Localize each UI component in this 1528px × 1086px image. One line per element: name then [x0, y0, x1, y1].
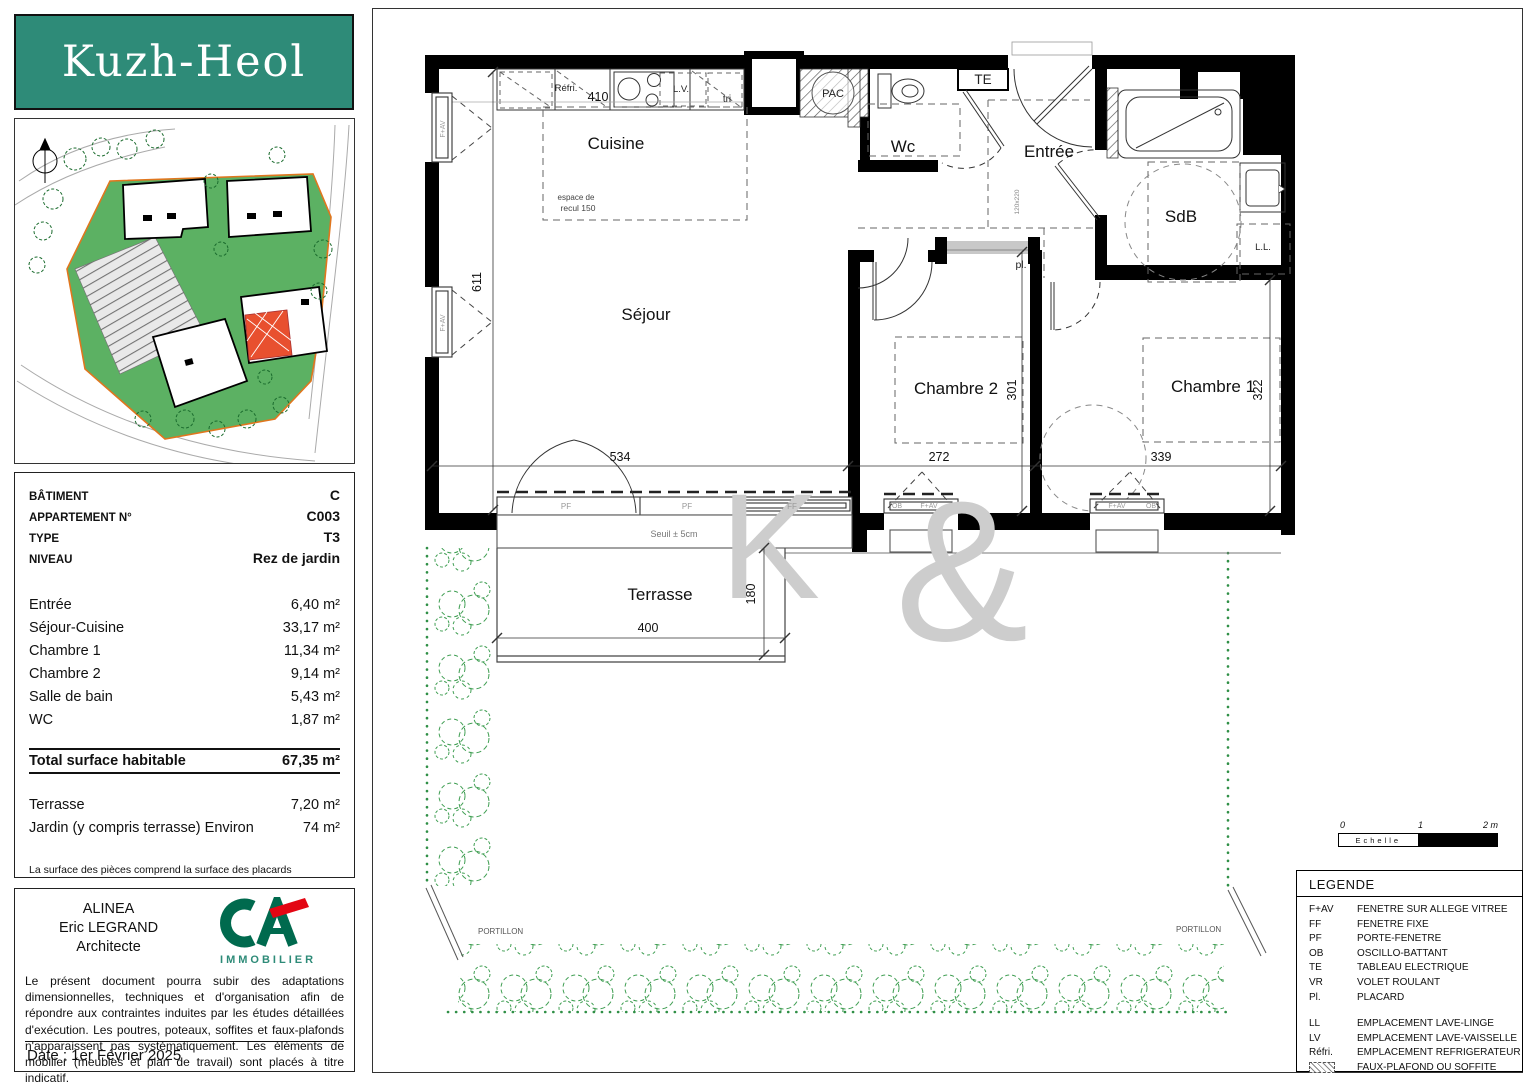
site-plan-drawing [15, 119, 354, 463]
scale-bar: 0 1 2 m Echelle [1338, 820, 1498, 854]
toilet [878, 74, 924, 108]
legend-row: LVEMPLACEMENT LAVE-VAISSELLE [1309, 1032, 1522, 1047]
room-sejour: Séjour [621, 305, 670, 324]
highlighted-unit [245, 310, 292, 360]
room-chambre2: Chambre 2 [914, 379, 998, 398]
area-row: Chambre 111,34 m² [29, 640, 340, 663]
svg-text:534: 534 [610, 450, 631, 464]
legend-row: PFPORTE-FENETRE [1309, 932, 1522, 947]
svg-text:120x220: 120x220 [1014, 189, 1021, 214]
meta-label: BÂTIMENT [29, 488, 88, 507]
svg-text:&: & [895, 460, 1028, 683]
legend-row: Pl.PLACARD [1309, 991, 1522, 1006]
area-row: Entrée6,40 m² [29, 594, 340, 617]
meta-value: C003 [307, 507, 340, 526]
program-logo-title: Kuzh-Heol [62, 37, 306, 87]
legend-row: FFFENETRE FIXE [1309, 918, 1522, 933]
legend-row: OBOSCILLO-BATTANT [1309, 947, 1522, 962]
room-entree: Entrée [1024, 142, 1074, 161]
watermark: K & [720, 460, 1028, 683]
date-row: Date : 1er Février 2025 [25, 1041, 344, 1066]
scale-tick-1: 1 [1418, 820, 1423, 830]
svg-text:tri: tri [723, 94, 731, 105]
svg-text:L.L.: L.L. [1255, 242, 1271, 253]
legend: LEGENDE F+AVFENETRE SUR ALLEGE VITREE FF… [1296, 870, 1523, 1072]
ca-logo-icon [213, 897, 323, 949]
svg-text:180: 180 [744, 584, 758, 605]
area-row: Chambre 29,14 m² [29, 663, 340, 686]
meta-label: NIVEAU [29, 551, 72, 570]
shaft [752, 59, 796, 107]
legend-row: VRVOLET ROULANT [1309, 976, 1522, 991]
washbasin [1240, 163, 1285, 212]
program-logo: Kuzh-Heol [14, 14, 354, 110]
ca-immobilier-brand: IMMOBILIER [192, 897, 344, 966]
svg-text:F+AV: F+AV [920, 503, 938, 510]
legend-row: TETABLEAU ELECTRIQUE [1309, 961, 1522, 976]
meta-label: TYPE [29, 530, 59, 549]
scale-tick-0: 0 [1340, 820, 1345, 830]
outdoor-areas: Terrasse7,20 m² Jardin (y compris terras… [29, 794, 340, 840]
legend-row-hatch: FAUX-PLAFOND OU SOFFITE [1309, 1061, 1522, 1076]
portillon-label-left: PORTILLON [478, 927, 523, 936]
svg-text:OB: OB [1146, 503, 1156, 510]
scale-black-segment [1419, 834, 1498, 846]
svg-text:espace de: espace de [558, 193, 595, 202]
svg-text:F+AV: F+AV [440, 314, 447, 332]
surface-note: La surface des pièces comprend la surfac… [29, 864, 340, 876]
svg-text:611: 611 [470, 272, 484, 292]
legend-row: Réfri.EMPLACEMENT REFRIGERATEUR [1309, 1046, 1522, 1061]
meta-value: Rez de jardin [253, 549, 340, 568]
area-row: Salle de bain5,43 m² [29, 686, 340, 709]
site-plan [14, 118, 355, 464]
svg-text:FF: FF [787, 502, 797, 511]
svg-text:410: 410 [588, 90, 609, 104]
meta-value: C [330, 486, 340, 505]
architect-block: ALINEA Eric LEGRAND Architecte IMMOBILIE… [14, 888, 355, 1072]
room-areas: Entrée6,40 m² Séjour-Cuisine33,17 m² Cha… [29, 594, 340, 732]
svg-text:Réfri.: Réfri. [555, 83, 578, 94]
room-sdb: SdB [1165, 207, 1197, 226]
apartment-info-table: BÂTIMENTC APPARTEMENT N°C003 TYPET3 NIVE… [14, 472, 355, 878]
svg-text:OB: OB [892, 503, 902, 510]
svg-text:PF: PF [682, 502, 692, 511]
room-wc: Wc [891, 137, 916, 156]
svg-text:F+AV: F+AV [1108, 503, 1126, 510]
scale-label: Echelle [1339, 834, 1419, 846]
svg-text:recul 150: recul 150 [561, 203, 596, 213]
svg-text:339: 339 [1151, 450, 1172, 464]
disclaimer-text: Le présent document pourra subir des ada… [25, 973, 344, 1086]
legend-row: LLEMPLACEMENT LAVE-LINGE [1309, 1017, 1522, 1032]
wall-niche [1198, 72, 1240, 99]
legend-row: F+AVFENETRE SUR ALLEGE VITREE [1309, 903, 1522, 918]
svg-text:L.V.: L.V. [673, 84, 689, 95]
svg-text:400: 400 [638, 621, 659, 635]
bathtub [1118, 90, 1240, 158]
area-row: Jardin (y compris terrasse) Environ74 m² [29, 817, 340, 840]
area-row: Séjour-Cuisine33,17 m² [29, 617, 340, 640]
portillon-label-right: PORTILLON [1176, 925, 1221, 934]
svg-text:PAC: PAC [822, 88, 844, 100]
total-surface-row: Total surface habitable67,35 m² [29, 748, 340, 774]
area-row: WC1,87 m² [29, 709, 340, 732]
placard [947, 241, 1028, 254]
svg-text:Seuil ± 5cm: Seuil ± 5cm [651, 529, 698, 539]
svg-text:272: 272 [929, 450, 950, 464]
svg-text:PF: PF [561, 502, 571, 511]
svg-text:pl.: pl. [1015, 259, 1026, 271]
brand-word: IMMOBILIER [192, 954, 344, 966]
meta-label: APPARTEMENT N° [29, 509, 132, 528]
room-cuisine: Cuisine [588, 134, 645, 153]
legend-title: LEGENDE [1309, 877, 1522, 892]
svg-text:K: K [720, 462, 820, 630]
svg-text:322: 322 [1251, 380, 1265, 401]
svg-text:F+AV: F+AV [440, 120, 447, 138]
room-terrasse: Terrasse [627, 585, 692, 604]
meta-value: T3 [324, 528, 340, 547]
faux-plafond-hatch-icon [1309, 1062, 1335, 1073]
architect-names: ALINEA Eric LEGRAND Architecte [25, 897, 192, 966]
scale-tick-2: 2 m [1483, 820, 1498, 830]
entrance-landing [1012, 42, 1092, 55]
garden: PORTILLON PORTILLON [426, 548, 1281, 1012]
room-chambre1: Chambre 1 [1171, 377, 1255, 396]
apartment-meta: BÂTIMENTC APPARTEMENT N°C003 TYPET3 NIVE… [29, 486, 340, 570]
svg-text:301: 301 [1005, 380, 1019, 401]
area-row: Terrasse7,20 m² [29, 794, 340, 817]
kitchen-counter [497, 69, 744, 110]
svg-text:TE: TE [974, 72, 991, 87]
